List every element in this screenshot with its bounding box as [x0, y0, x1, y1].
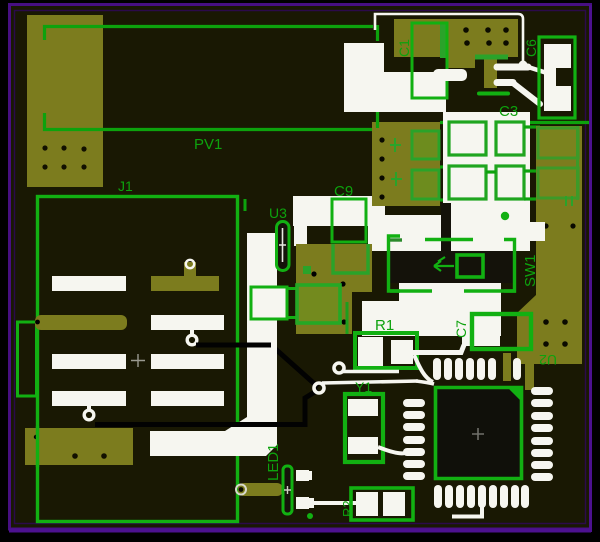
svg-text:C9: C9: [334, 183, 353, 200]
svg-text:PV1: PV1: [194, 136, 222, 153]
svg-text:LED1: LED1: [265, 443, 282, 481]
svg-text:J1: J1: [118, 178, 133, 194]
svg-text:C1: C1: [396, 39, 412, 57]
svg-text:U2: U2: [539, 352, 557, 368]
svg-text:C7: C7: [453, 320, 469, 338]
svg-text:U3: U3: [269, 205, 287, 221]
svg-text:C3: C3: [499, 103, 518, 120]
svg-text:C6: C6: [523, 39, 539, 57]
